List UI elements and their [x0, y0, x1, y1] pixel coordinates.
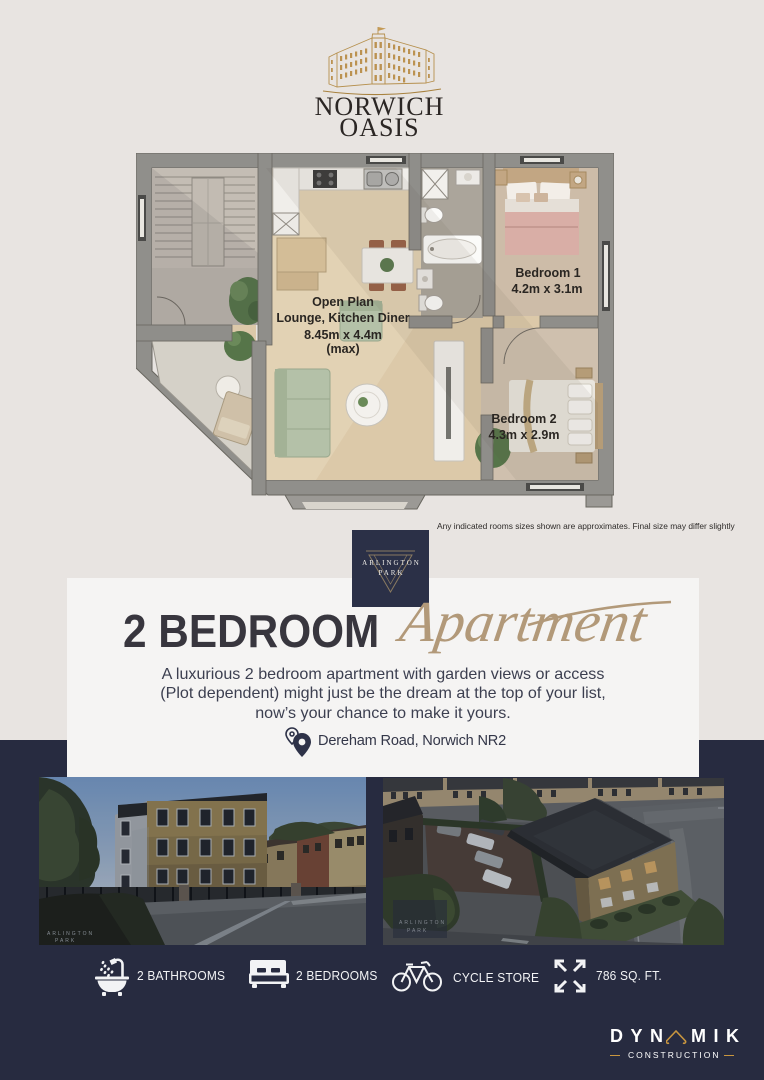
svg-text:Apartment: Apartment	[392, 589, 653, 654]
svg-text:Open Plan: Open Plan	[312, 295, 374, 309]
svg-text:Lounge, Kitchen Diner: Lounge, Kitchen Diner	[276, 311, 409, 325]
svg-text:Bedroom 1: Bedroom 1	[515, 266, 580, 280]
svg-text:Bedroom 2: Bedroom 2	[491, 412, 556, 426]
svg-text:(max): (max)	[326, 342, 359, 356]
svg-text:8.45m x 4.4m: 8.45m x 4.4m	[304, 328, 382, 342]
svg-text:4.3m x 2.9m: 4.3m x 2.9m	[489, 428, 560, 442]
svg-text:4.2m x 3.1m: 4.2m x 3.1m	[512, 282, 583, 296]
